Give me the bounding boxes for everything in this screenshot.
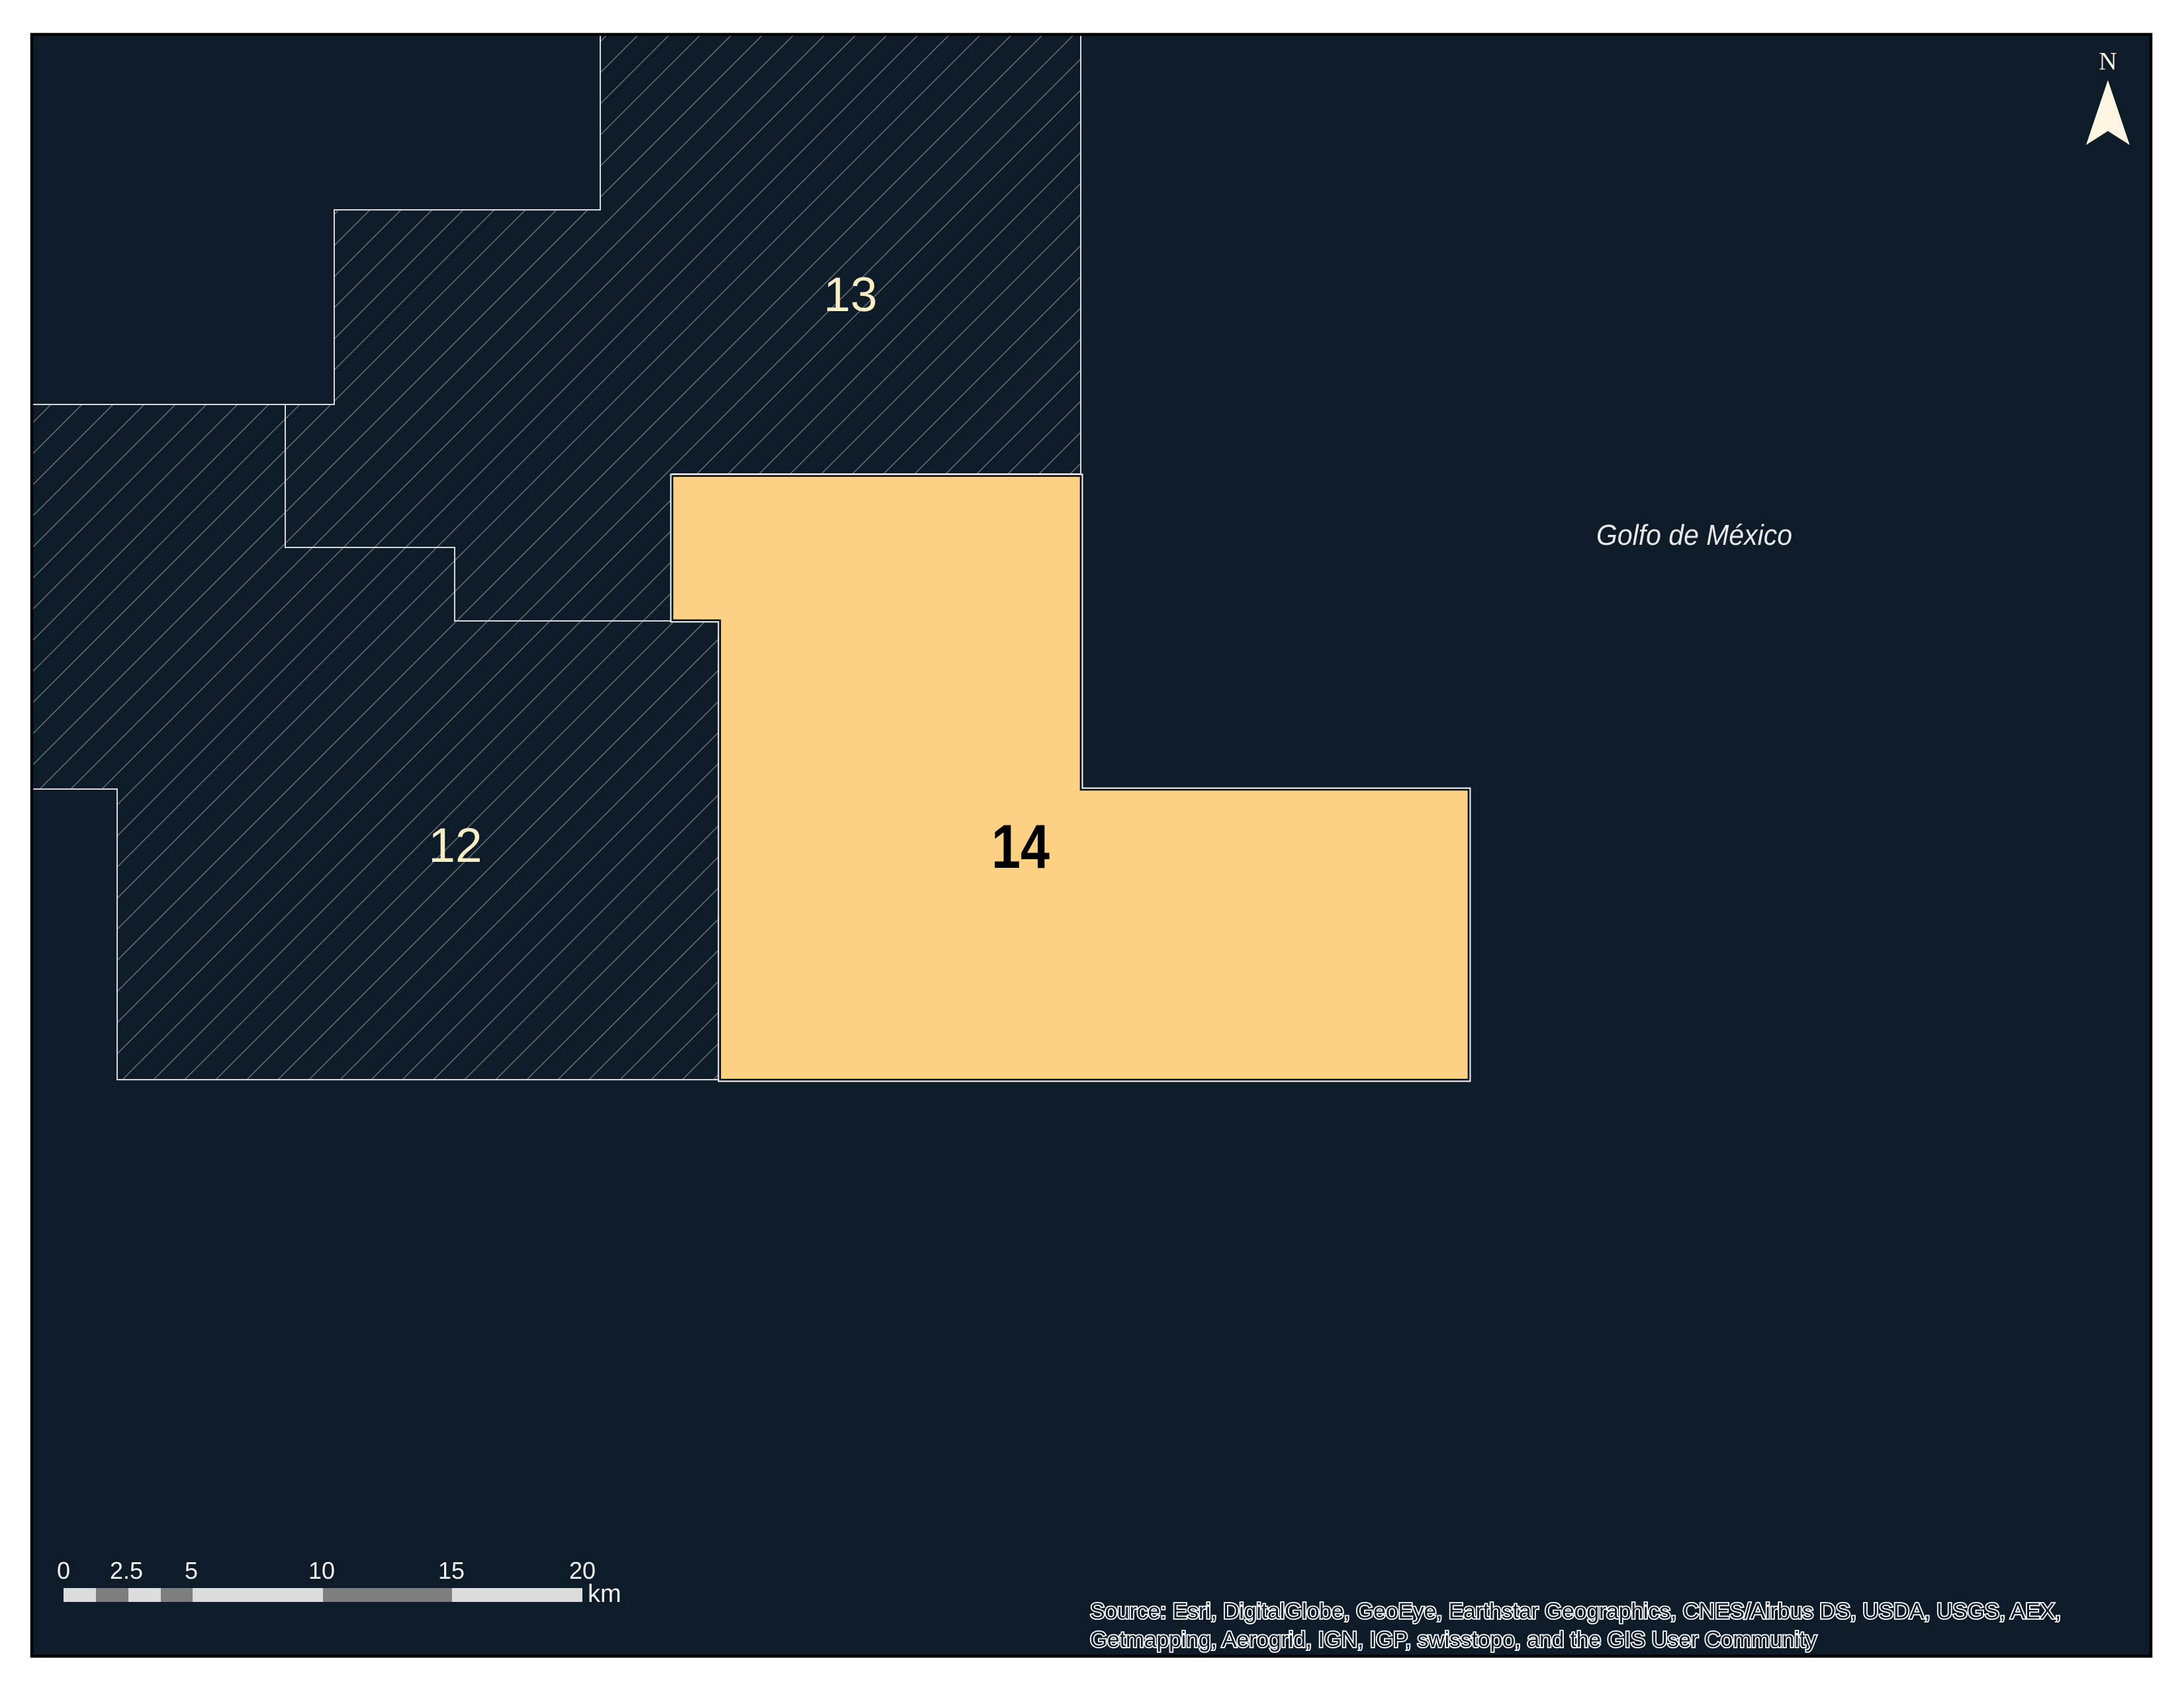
svg-text:12: 12: [428, 819, 482, 872]
svg-text:km: km: [588, 1580, 621, 1608]
svg-text:14: 14: [991, 812, 1050, 881]
svg-text:Source: Esri, DigitalGlobe, Ge: Source: Esri, DigitalGlobe, GeoEye, Eart…: [1090, 1599, 2061, 1624]
svg-text:Golfo de México: Golfo de México: [1596, 519, 1792, 551]
svg-text:5: 5: [185, 1557, 198, 1584]
svg-text:0: 0: [57, 1557, 70, 1584]
svg-text:10: 10: [308, 1557, 335, 1584]
svg-text:N: N: [2099, 48, 2116, 75]
svg-text:Getmapping, Aerogrid, IGN, IGP: Getmapping, Aerogrid, IGN, IGP, swisstop…: [1090, 1628, 1817, 1652]
svg-text:2.5: 2.5: [110, 1557, 143, 1584]
svg-text:15: 15: [438, 1557, 465, 1584]
svg-text:13: 13: [823, 268, 877, 322]
